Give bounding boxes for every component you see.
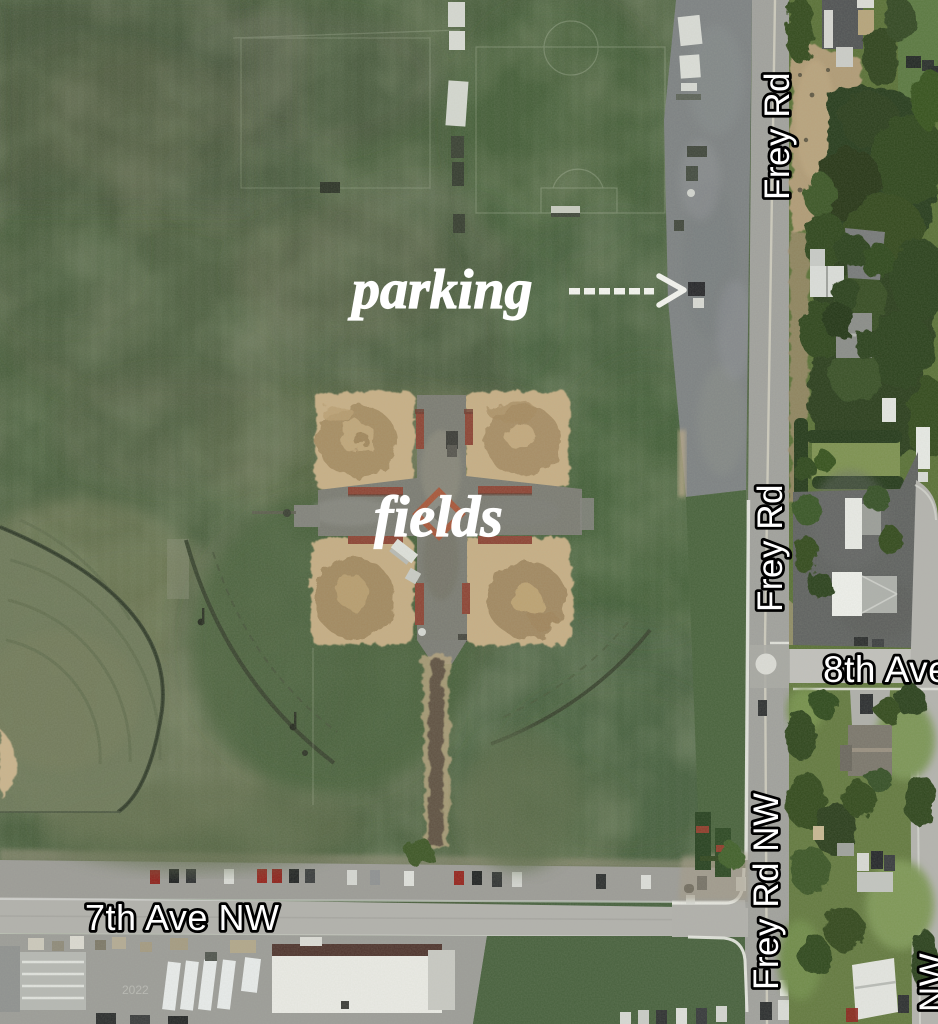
svg-text:NW: NW [913,953,938,1012]
svg-text:Frey Rd NW: Frey Rd NW [747,793,786,991]
svg-text:fields: fields [374,484,503,549]
svg-text:7th Ave NW: 7th Ave NW [85,897,279,938]
svg-text:Frey Rd: Frey Rd [751,484,790,612]
svg-text:parking: parking [348,259,533,321]
svg-text:8th Ave: 8th Ave [823,649,938,690]
svg-text:Frey Rd: Frey Rd [758,72,797,200]
